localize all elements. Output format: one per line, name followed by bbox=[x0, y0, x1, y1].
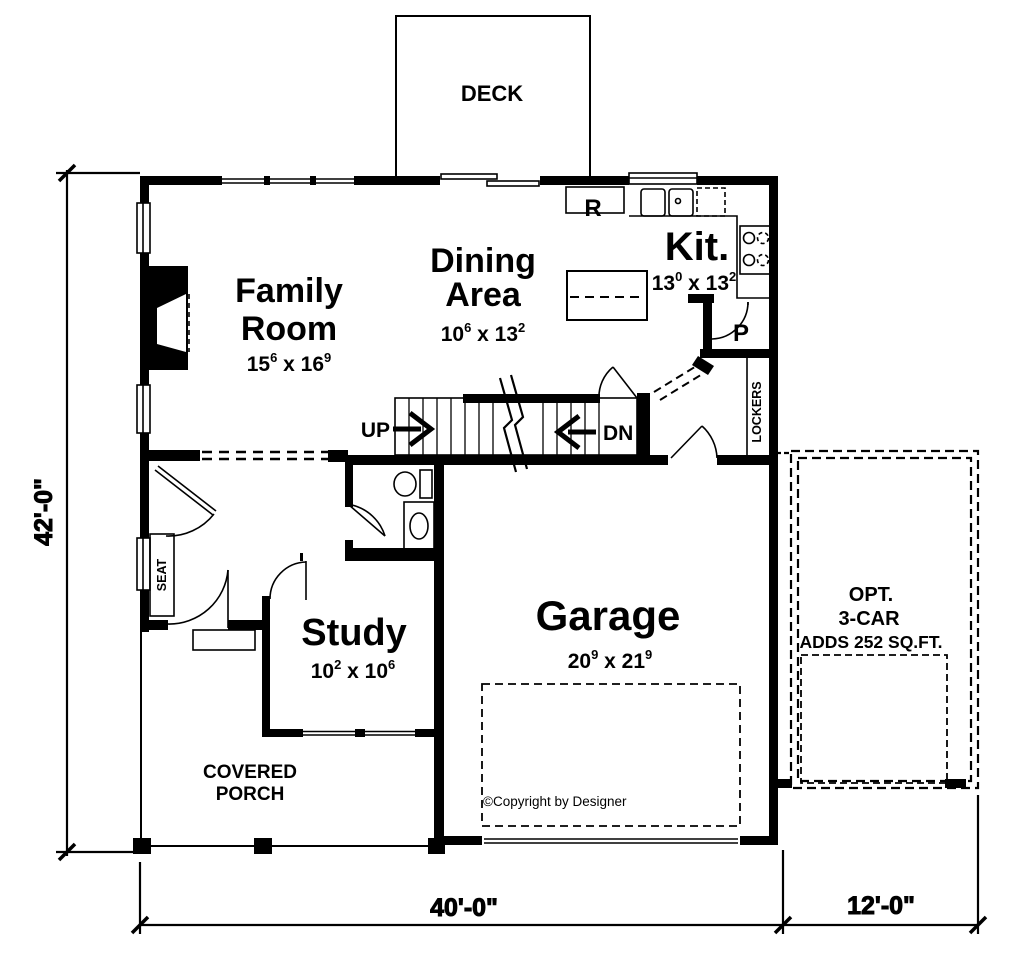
family-room-label-1: Family bbox=[235, 272, 343, 310]
sliding-door bbox=[440, 174, 540, 186]
interior-walls bbox=[140, 450, 778, 556]
pantry-label: P bbox=[733, 320, 749, 347]
dining-area: Dining Area 106 x 132 bbox=[430, 242, 647, 346]
front-step bbox=[193, 630, 255, 650]
floor-plan-drawing: DECK Fami bbox=[0, 0, 1024, 960]
dining-label-1: Dining bbox=[430, 242, 536, 280]
study-door-arc bbox=[270, 562, 306, 599]
garage-entry-door bbox=[671, 426, 717, 458]
floor-plan-page: DECK Fami bbox=[0, 0, 1024, 960]
down-label: DN bbox=[603, 422, 633, 445]
up-arrow-icon bbox=[393, 413, 431, 445]
left-dimension-label: 42'-0" bbox=[30, 478, 58, 546]
mudroom: LOCKERS bbox=[637, 356, 764, 460]
garage-dimensions: 209 x 219 bbox=[568, 647, 653, 673]
opt-garage-label-3: ADDS 252 SQ.FT. bbox=[800, 632, 943, 652]
right-dimension-label: 12'-0" bbox=[847, 892, 915, 920]
refrigerator-label: R bbox=[584, 195, 601, 222]
study-label: Study bbox=[301, 612, 407, 654]
porch-post bbox=[254, 838, 272, 854]
dining-label-2: Area bbox=[445, 276, 522, 314]
deck: DECK bbox=[396, 16, 590, 178]
down-arrow-icon bbox=[558, 416, 596, 448]
dishwasher bbox=[697, 188, 725, 216]
lockers-label: LOCKERS bbox=[750, 381, 764, 442]
powder-sink bbox=[404, 502, 434, 550]
porch-post bbox=[428, 838, 445, 854]
opt-garage-label-2: 3-CAR bbox=[838, 608, 900, 630]
seat-label: SEAT bbox=[155, 558, 169, 591]
optional-garage-door-outline bbox=[801, 655, 947, 783]
family-room-label-2: Room bbox=[241, 310, 337, 348]
optional-3-car-garage: OPT. 3-CAR ADDS 252 SQ.FT. bbox=[776, 451, 978, 788]
deck-label: DECK bbox=[461, 81, 523, 106]
family-room: Family Room 156 x 169 bbox=[235, 272, 343, 376]
covered-porch: COVERED PORCH bbox=[133, 630, 445, 854]
kitchen-dimensions: 130 x 132 bbox=[652, 269, 737, 295]
fireplace bbox=[148, 266, 189, 370]
toilet bbox=[394, 470, 432, 498]
copyright-text: ©Copyright by Designer bbox=[483, 794, 627, 809]
closet-door bbox=[155, 466, 216, 536]
powder-room bbox=[349, 470, 434, 550]
up-label: UP bbox=[361, 419, 390, 442]
dining-dimensions: 106 x 132 bbox=[441, 320, 526, 346]
kitchen-sink bbox=[641, 189, 693, 216]
garage-label: Garage bbox=[536, 592, 681, 639]
family-room-dimensions: 156 x 169 bbox=[247, 350, 332, 376]
kitchen-label: Kit. bbox=[665, 225, 729, 269]
bottom-dimension-label: 40'-0" bbox=[430, 894, 498, 922]
front-door bbox=[168, 570, 255, 650]
study: Study 102 x 106 bbox=[262, 553, 444, 737]
kitchen-window bbox=[629, 172, 697, 185]
opt-garage-label-1: OPT. bbox=[849, 584, 893, 606]
window-seat: SEAT bbox=[150, 534, 174, 616]
range bbox=[740, 226, 770, 274]
garage-door bbox=[482, 836, 740, 845]
kitchen: R Kit. 130 x 132 bbox=[566, 187, 770, 298]
garage: Garage 209 x 219 ©Copyright by Designer bbox=[482, 592, 740, 845]
porch-label-1: COVERED bbox=[203, 762, 297, 783]
pantry: P bbox=[688, 294, 778, 358]
porch-label-2: PORCH bbox=[216, 784, 285, 805]
study-dimensions: 102 x 106 bbox=[311, 657, 396, 683]
dining-table bbox=[567, 271, 647, 320]
